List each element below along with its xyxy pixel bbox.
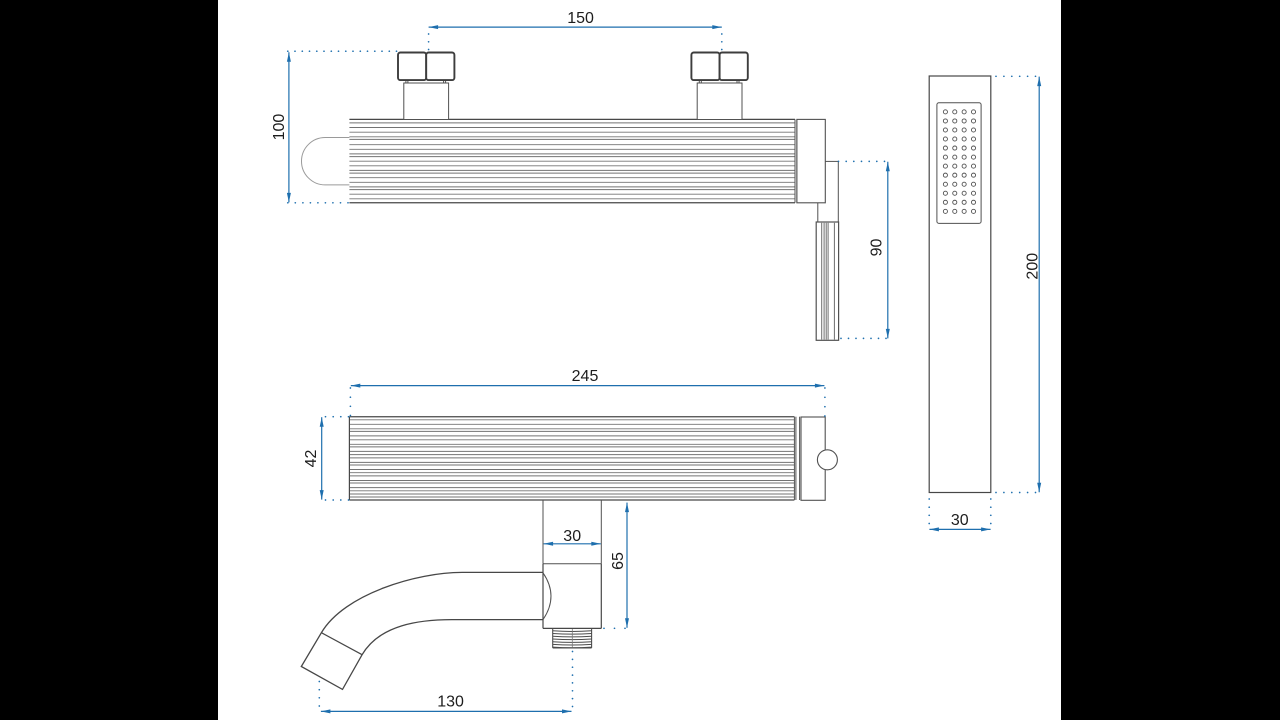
svg-text:130: 130 — [437, 694, 464, 711]
svg-text:30: 30 — [563, 528, 581, 545]
svg-text:90: 90 — [869, 239, 886, 257]
svg-text:65: 65 — [610, 552, 627, 570]
svg-text:30: 30 — [951, 512, 969, 529]
svg-text:200: 200 — [1025, 253, 1042, 280]
svg-text:42: 42 — [303, 450, 320, 468]
svg-text:100: 100 — [271, 114, 288, 141]
svg-text:245: 245 — [572, 368, 599, 385]
svg-text:150: 150 — [567, 10, 594, 27]
